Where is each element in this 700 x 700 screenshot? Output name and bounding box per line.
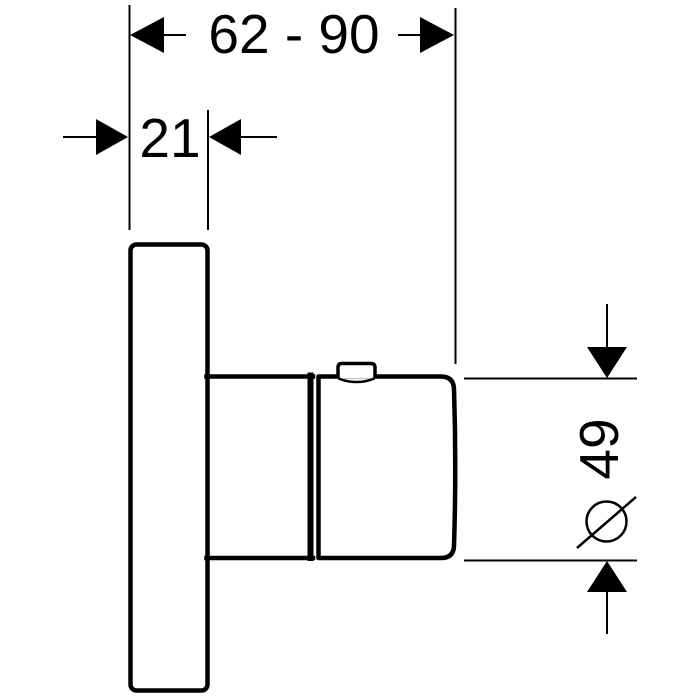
valve-assembly (131, 245, 456, 691)
handle-knob (319, 377, 456, 559)
arrow-down-icon (587, 347, 627, 378)
wall-plate (131, 245, 208, 691)
plate-thickness-label: 21 (139, 107, 200, 169)
arrow-left-icon (130, 17, 164, 53)
arrow-right-icon (420, 17, 454, 53)
diameter-value-label: 49 (568, 418, 630, 479)
arrow-left-icon (209, 119, 241, 155)
dimension-knob-diameter: 49 (464, 304, 637, 634)
diameter-symbol-icon (577, 497, 636, 548)
handle-grip-tab (338, 364, 375, 379)
arrow-up-icon (587, 561, 627, 592)
width-range-label: 62 - 90 (208, 3, 379, 65)
technical-drawing-canvas: 62 - 90 21 (0, 0, 700, 700)
arrow-right-icon (96, 119, 128, 155)
valve-dimension-drawing: 62 - 90 21 (0, 0, 700, 700)
dimension-plate-thickness: 21 (63, 107, 277, 230)
